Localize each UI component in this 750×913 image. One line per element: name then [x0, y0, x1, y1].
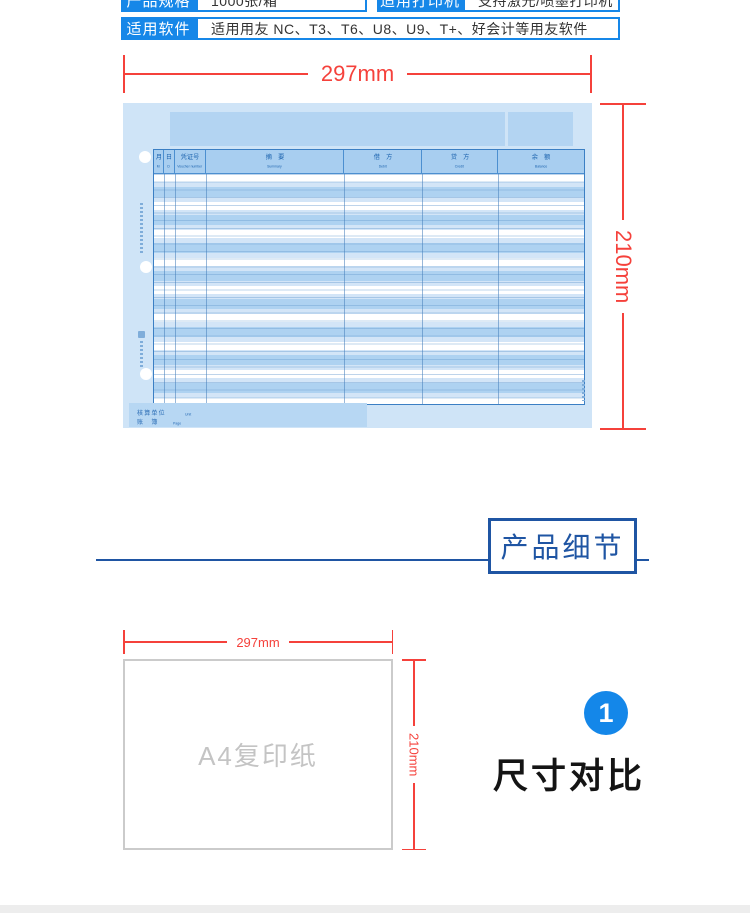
dimension-line — [289, 641, 392, 643]
ledger-table-header: 月 M 日 D 凭证号 Voucher number 摘 要 Summary 借… — [154, 150, 584, 174]
badge-number: 1 — [598, 698, 613, 729]
spec-value-printer: 支持激光/喷墨打印机 — [463, 0, 620, 12]
punch-hole — [140, 261, 152, 273]
dimension-line — [125, 73, 308, 75]
spec-value-text: 1000张/箱 — [211, 0, 278, 11]
column-header-voucher: 凭证号 Voucher number — [175, 150, 206, 173]
ledger-paper-image: 月 M 日 D 凭证号 Voucher number 摘 要 Summary 借… — [123, 103, 592, 428]
column-line — [206, 174, 207, 404]
brand-logo-mark — [138, 331, 145, 338]
dimension-tick — [600, 428, 646, 430]
dimension-line — [622, 313, 624, 428]
punch-hole — [140, 368, 152, 380]
left-margin-microtext — [140, 203, 143, 253]
ledger-footer: 核算单位 Unit 账 簿 Page — [129, 403, 367, 427]
spec-value-text: 支持激光/喷墨打印机 — [478, 0, 613, 11]
dimension-line — [413, 783, 415, 848]
punch-hole — [139, 151, 151, 163]
a4-paper-box: A4复印纸 — [123, 659, 393, 850]
dimension-tick — [590, 55, 592, 93]
a4-width-dimension: 297mm — [123, 630, 393, 654]
dimension-line — [413, 661, 415, 726]
ledger-page-box — [508, 112, 573, 146]
a4-height-dimension: 210mm — [402, 659, 426, 850]
ledger-width-label: 297mm — [321, 61, 394, 87]
column-header-balance: 余 额 Balance — [498, 150, 584, 173]
a4-paper-label: A4复印纸 — [198, 736, 318, 773]
ledger-table-body — [154, 174, 584, 404]
spec-value-software: 适用用友 NC、T3、T6、U8、U9、T+、好会计等用友软件 — [196, 17, 620, 40]
section-number-badge: 1 — [584, 691, 628, 735]
column-header-credit: 贷 方 Credit — [422, 150, 498, 173]
footer-unit-label: 核算单位 — [137, 408, 166, 417]
column-header-summary: 摘 要 Summary — [206, 150, 344, 173]
details-section-title: 产品细节 — [500, 526, 624, 566]
spec-label-text: 适用打印机 — [380, 0, 460, 11]
ledger-height-label: 210mm — [610, 230, 636, 303]
ledger-table: 月 M 日 D 凭证号 Voucher number 摘 要 Summary 借… — [153, 149, 585, 405]
spec-label-printer: 适用打印机 — [377, 0, 463, 12]
left-margin-microtext — [140, 341, 143, 367]
dimension-line — [407, 73, 590, 75]
spec-label-software: 适用软件 — [121, 17, 196, 40]
ledger-height-dimension: 210mm — [600, 103, 646, 430]
dimension-line — [125, 641, 228, 643]
dimension-tick — [392, 630, 394, 654]
column-line — [498, 174, 499, 404]
ledger-width-dimension: 297mm — [123, 55, 592, 93]
size-section-title: 尺寸对比 — [493, 748, 645, 799]
details-section-header: 产品细节 — [488, 518, 637, 574]
a4-height-label: 210mm — [407, 733, 422, 776]
bottom-divider-bar — [0, 905, 750, 913]
footer-unit-en: Unit — [185, 413, 191, 417]
footer-book-label: 账 簿 — [137, 417, 159, 426]
spec-label-product-size: 产品规格 — [121, 0, 196, 12]
column-line — [175, 174, 176, 404]
dimension-line — [622, 105, 624, 220]
column-line — [164, 174, 165, 404]
spec-label-text: 产品规格 — [126, 0, 190, 11]
spec-label-text: 适用软件 — [126, 18, 190, 39]
footer-book-en: Page — [173, 422, 181, 426]
spec-value-product-size: 1000张/箱 — [196, 0, 367, 12]
ledger-title-band — [170, 112, 505, 146]
column-header-month: 月 M — [154, 150, 164, 173]
column-line — [344, 174, 345, 404]
column-header-day: 日 D — [164, 150, 175, 173]
column-header-debit: 借 方 Debit — [344, 150, 422, 173]
product-detail-page: 产品规格 1000张/箱 适用打印机 支持激光/喷墨打印机 适用软件 适用用友 … — [0, 0, 750, 913]
right-margin-microtext — [582, 380, 585, 401]
a4-width-label: 297mm — [236, 635, 279, 650]
spec-value-text: 适用用友 NC、T3、T6、U8、U9、T+、好会计等用友软件 — [211, 19, 588, 39]
dimension-tick — [402, 849, 426, 851]
column-line — [422, 174, 423, 404]
